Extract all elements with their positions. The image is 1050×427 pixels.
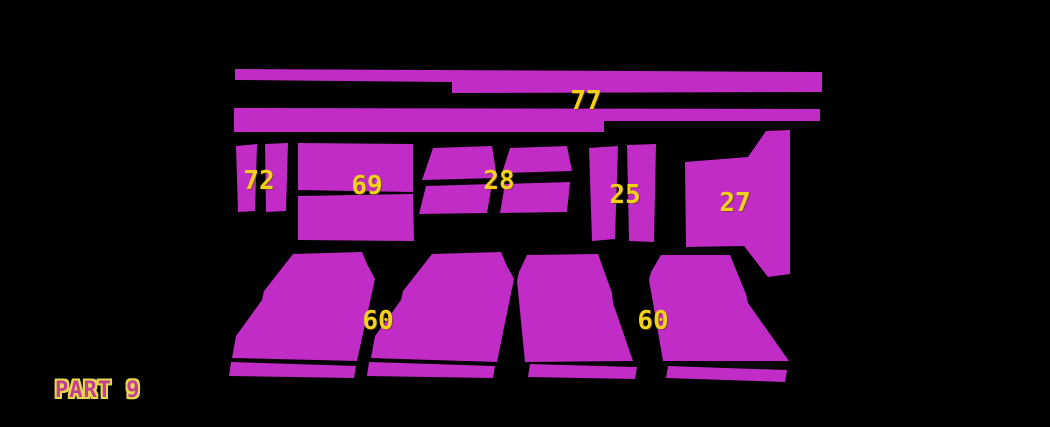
pattern-board: 7772692825276060 PART 9	[0, 0, 1050, 427]
pattern-piece-28	[419, 184, 492, 214]
pattern-piece-60-left	[229, 362, 356, 378]
piece-number-27: 27	[719, 188, 750, 218]
pattern-piece-60-right	[517, 254, 633, 362]
pattern-piece-60-left	[232, 252, 375, 361]
piece-number-72: 72	[243, 166, 274, 196]
pattern-piece-60-right	[666, 366, 787, 382]
piece-number-25: 25	[609, 180, 640, 210]
piece-number-77: 77	[570, 86, 601, 116]
piece-number-69: 69	[351, 171, 382, 201]
piece-number-60-right: 60	[637, 306, 668, 336]
pattern-piece-69	[298, 194, 414, 241]
piece-number-28: 28	[483, 166, 514, 196]
pattern-piece-60-left	[367, 362, 495, 378]
pattern-piece-60-right	[528, 364, 637, 379]
pattern-pieces-svg	[0, 0, 1050, 427]
pattern-piece-77	[234, 108, 820, 132]
piece-number-60-left: 60	[362, 306, 393, 336]
part-title: PART 9	[55, 378, 140, 403]
pattern-piece-77	[235, 69, 822, 93]
